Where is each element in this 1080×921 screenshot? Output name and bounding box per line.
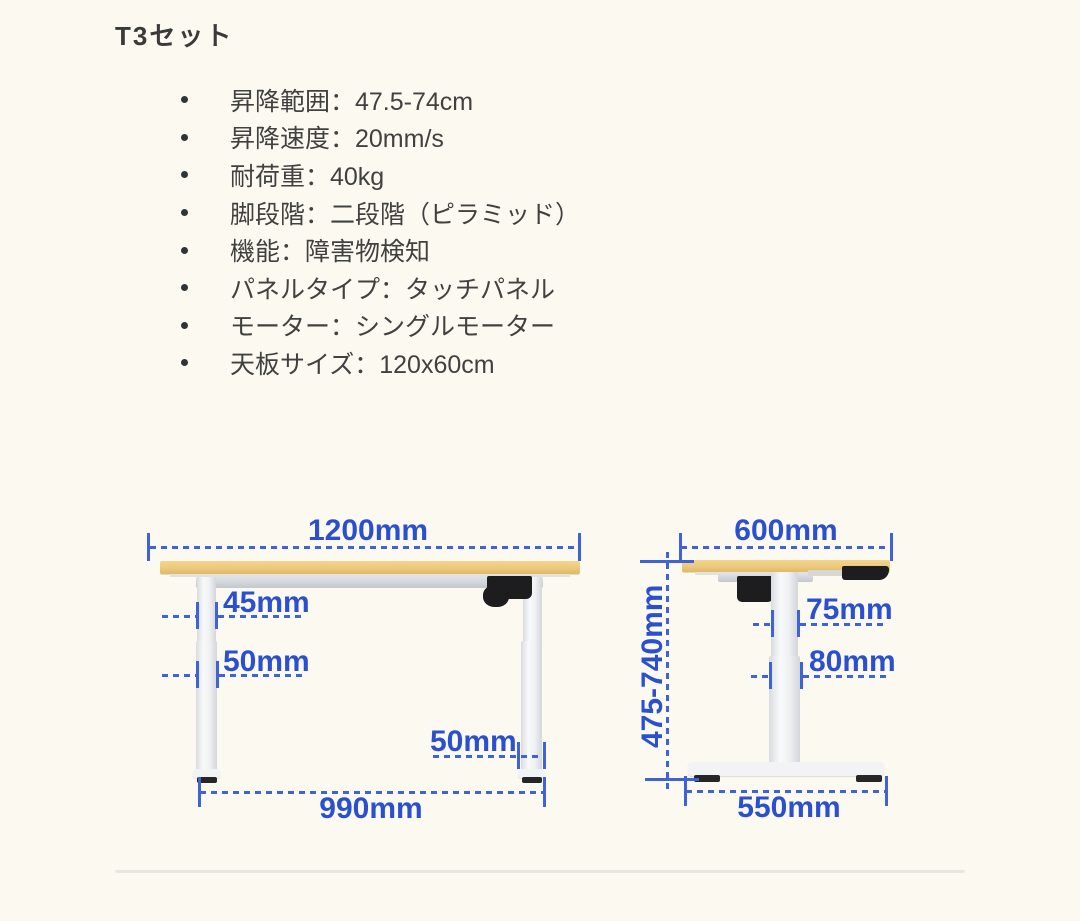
spec-text: 昇降範囲：47.5-74cm [230, 82, 473, 118]
bullet-icon [181, 209, 188, 216]
column-upper [771, 572, 798, 658]
bullet-icon [181, 247, 188, 254]
spec-item: 昇降範囲：47.5-74cm [181, 81, 580, 119]
front-foot-column-label: 50mm [430, 728, 510, 756]
dimension-tick [640, 560, 694, 563]
side-height-range-label: 475-740mm [638, 590, 670, 748]
spec-text: 機能：障害物検知 [230, 232, 430, 268]
dimension-tick [196, 661, 199, 688]
spec-item: 昇降速度：20mm/s [181, 119, 580, 157]
dimension-tick [543, 777, 546, 807]
spec-text: 脚段階：二段階（ピラミッド） [230, 195, 580, 231]
dimension-line [681, 546, 891, 549]
spec-text: 天板サイズ：120x60cm [230, 345, 495, 381]
side-top-depth-label: 600mm [734, 517, 837, 545]
dimension-tick [543, 742, 546, 769]
left-leg-lower [196, 641, 217, 771]
dimension-tick [885, 776, 888, 806]
spec-text: パネルタイプ：タッチパネル [230, 270, 555, 306]
spec-text: 耐荷重：40kg [230, 157, 384, 193]
dimension-line [162, 674, 196, 677]
spec-item: モーター：シングルモーター [181, 307, 580, 345]
right-foot-pad [522, 777, 542, 783]
spec-item: パネルタイプ：タッチパネル [181, 269, 580, 307]
dimension-tick [769, 662, 772, 689]
underside-shadow-wedge [808, 570, 846, 576]
product-spec-page: { "title": "T3セット", "specs": [ "昇降範囲：47.… [0, 0, 1080, 921]
spec-item: 脚段階：二段階（ピラミッド） [181, 194, 580, 232]
dimension-line [162, 615, 196, 618]
tabletop-front [160, 561, 580, 574]
dimension-tick [890, 533, 893, 561]
control-box-side [737, 576, 773, 602]
front-base-span-label: 990mm [319, 795, 422, 823]
dimension-tick [679, 533, 682, 561]
side-foot-depth-label: 550mm [737, 794, 840, 822]
page-title: T3セット [115, 16, 233, 53]
dimension-line [150, 546, 580, 549]
control-box-knob [483, 585, 509, 607]
foot-pad-rear [856, 775, 882, 782]
dimension-line [753, 623, 771, 626]
right-leg-lower [521, 641, 542, 771]
side-lower-column-label: 80mm [809, 648, 896, 676]
bullet-icon [181, 359, 188, 366]
dimension-tick [645, 778, 699, 781]
touch-panel-side [842, 566, 889, 580]
bullet-icon [181, 134, 188, 141]
dimension-tick [771, 610, 774, 637]
dimension-tick [517, 742, 520, 769]
spec-item: 耐荷重：40kg [181, 156, 580, 194]
bullet-icon [181, 96, 188, 103]
dimension-line [751, 675, 769, 678]
dimension-line [433, 755, 546, 758]
bullet-icon [181, 284, 188, 291]
front-top-width-label: 1200mm [308, 517, 428, 545]
dimension-tick [147, 533, 150, 561]
front-upper-leg-label: 45mm [223, 589, 310, 617]
dimension-tick [684, 776, 687, 806]
left-leg-upper [197, 577, 216, 643]
dimension-tick [578, 533, 581, 561]
spec-item: 天板サイズ：120x60cm [181, 344, 580, 382]
front-lower-leg-label: 50mm [223, 648, 310, 676]
foot-side [688, 762, 884, 776]
bullet-icon [181, 322, 188, 329]
side-upper-column-label: 75mm [806, 596, 893, 624]
spec-text: モーター：シングルモーター [230, 307, 555, 343]
dimension-tick [196, 602, 199, 629]
spec-item: 機能：障害物検知 [181, 231, 580, 269]
spec-text: 昇降速度：20mm/s [230, 119, 444, 155]
spec-list: 昇降範囲：47.5-74cm 昇降速度：20mm/s 耐荷重：40kg 脚段階：… [181, 81, 580, 382]
section-divider [115, 870, 965, 873]
dimension-tick [198, 777, 201, 807]
column-lower [769, 656, 800, 768]
bullet-icon [181, 171, 188, 178]
